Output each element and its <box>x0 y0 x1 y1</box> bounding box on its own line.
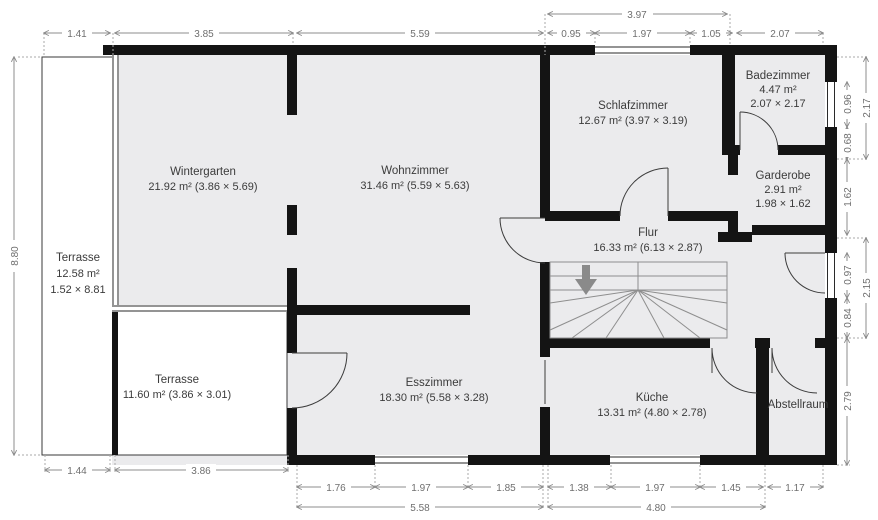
svg-text:16.33 m² (6.13 × 2.87): 16.33 m² (6.13 × 2.87) <box>593 242 702 254</box>
svg-text:1.97: 1.97 <box>645 483 665 494</box>
svg-text:1.62: 1.62 <box>843 187 854 207</box>
glazing-wintergarten-west <box>112 55 119 311</box>
svg-text:13.31 m² (4.80 × 2.78): 13.31 m² (4.80 × 2.78) <box>597 407 706 419</box>
dim-right-2: 2.17 <box>860 57 873 159</box>
svg-text:Terrasse: Terrasse <box>155 374 199 386</box>
floor-plan-canvas: Wintergarten 21.92 m² (3.86 × 5.69) Wohn… <box>0 0 878 520</box>
svg-text:5.58: 5.58 <box>410 503 430 514</box>
dim-bottom-8: 1.17 <box>768 481 823 494</box>
dim-right-7: 2.79 <box>841 338 854 465</box>
room-label-abstellraum: Abstellraum <box>768 399 829 411</box>
svg-text:1.17: 1.17 <box>785 483 805 494</box>
dim-top-6: 2.07 <box>737 27 823 40</box>
svg-text:1.76: 1.76 <box>326 483 346 494</box>
dim-bottom-total-1: 4.80 <box>548 501 765 514</box>
svg-text:5.59: 5.59 <box>410 29 430 40</box>
glazing-wintergarten-south <box>112 305 287 312</box>
dim-bottom-0: 1.44 <box>45 464 110 477</box>
dim-right-3: 1.62 <box>841 159 854 235</box>
svg-text:0.97: 0.97 <box>843 265 854 285</box>
dim-right-5: 0.84 <box>841 298 854 338</box>
terrace-south-area <box>115 311 287 455</box>
svg-text:0.68: 0.68 <box>843 133 854 153</box>
svg-text:31.46 m² (5.59 × 5.63): 31.46 m² (5.59 × 5.63) <box>360 180 469 192</box>
svg-text:Flur: Flur <box>638 227 658 239</box>
window-kueche-bottom <box>610 455 700 465</box>
svg-text:21.92 m² (3.86 × 5.69): 21.92 m² (3.86 × 5.69) <box>148 181 257 193</box>
svg-text:1.41: 1.41 <box>67 29 87 40</box>
floor-plan-page: Wintergarten 21.92 m² (3.86 × 5.69) Wohn… <box>0 0 878 520</box>
svg-text:3.86: 3.86 <box>191 466 211 477</box>
svg-text:Esszimmer: Esszimmer <box>406 377 463 389</box>
dim-bottom-1: 3.86 <box>115 464 288 477</box>
room-label-terrasse-west: Terrasse 12.58 m² 1.52 × 8.81 <box>50 252 105 296</box>
dim-bottom-total-0: 5.58 <box>297 501 543 514</box>
svg-text:Terrasse: Terrasse <box>56 252 100 264</box>
window-esszimmer-bottom <box>375 455 468 465</box>
svg-text:1.97: 1.97 <box>632 29 652 40</box>
svg-text:1.38: 1.38 <box>569 483 589 494</box>
svg-text:Schlafzimmer: Schlafzimmer <box>598 100 668 112</box>
svg-text:18.30 m² (5.58 × 3.28): 18.30 m² (5.58 × 3.28) <box>379 392 488 404</box>
svg-text:1.45: 1.45 <box>721 483 741 494</box>
dim-top-2: 5.59 <box>297 27 543 40</box>
svg-text:2.17: 2.17 <box>862 98 873 118</box>
dim-bottom-7: 1.45 <box>700 481 763 494</box>
svg-text:4.47 m²: 4.47 m² <box>759 84 797 96</box>
svg-text:1.52 × 8.81: 1.52 × 8.81 <box>50 284 105 296</box>
dim-bottom-2: 1.76 <box>297 481 375 494</box>
svg-text:2.07: 2.07 <box>770 29 790 40</box>
svg-text:12.58 m²: 12.58 m² <box>56 268 100 280</box>
svg-text:3.97: 3.97 <box>627 10 647 21</box>
svg-text:0.95: 0.95 <box>561 29 581 40</box>
svg-text:8.80: 8.80 <box>10 246 21 266</box>
svg-text:3.85: 3.85 <box>194 29 214 40</box>
svg-text:11.60 m² (3.86 × 3.01): 11.60 m² (3.86 × 3.01) <box>123 389 231 401</box>
dim-bottom-4: 1.85 <box>468 481 543 494</box>
svg-text:Badezimmer: Badezimmer <box>746 70 811 82</box>
svg-text:1.44: 1.44 <box>67 466 87 477</box>
svg-text:1.85: 1.85 <box>496 483 516 494</box>
dim-right-4: 0.97 <box>841 253 854 298</box>
dim-right-0: 0.96 <box>841 82 854 127</box>
svg-text:2.79: 2.79 <box>843 391 854 411</box>
svg-text:Wintergarten: Wintergarten <box>170 166 236 178</box>
dim-top-total: 3.97 <box>548 8 727 21</box>
dim-right-1: 0.68 <box>841 127 854 159</box>
svg-text:4.80: 4.80 <box>646 503 666 514</box>
svg-text:1.05: 1.05 <box>701 29 721 40</box>
svg-text:Küche: Küche <box>636 392 669 404</box>
svg-text:Abstellraum: Abstellraum <box>768 399 829 411</box>
window-schlafzimmer-top <box>595 45 690 55</box>
svg-text:1.97: 1.97 <box>411 483 431 494</box>
entry-opening-flur-right <box>825 253 837 298</box>
window-badezimmer-right <box>825 82 837 127</box>
svg-text:Garderobe: Garderobe <box>756 170 811 182</box>
dim-top-0: 1.41 <box>44 27 110 40</box>
dim-left-total: 8.80 <box>8 57 21 455</box>
dim-top-3: 0.95 <box>548 27 595 40</box>
dim-bottom-5: 1.38 <box>548 481 611 494</box>
dim-top-1: 3.85 <box>115 27 293 40</box>
dim-top-4: 1.97 <box>595 27 690 40</box>
dim-bottom-6: 1.97 <box>611 481 700 494</box>
svg-text:1.98 × 1.62: 1.98 × 1.62 <box>755 198 810 210</box>
svg-text:0.84: 0.84 <box>843 308 854 328</box>
dim-bottom-3: 1.97 <box>375 481 468 494</box>
dim-top-5: 1.05 <box>690 27 732 40</box>
dim-right-6: 2.15 <box>860 238 873 338</box>
svg-text:2.15: 2.15 <box>862 278 873 298</box>
svg-text:2.91 m²: 2.91 m² <box>764 184 802 196</box>
svg-text:2.07 × 2.17: 2.07 × 2.17 <box>750 98 805 110</box>
svg-text:Wohnzimmer: Wohnzimmer <box>381 165 449 177</box>
svg-text:0.96: 0.96 <box>843 94 854 114</box>
svg-text:12.67 m² (3.97 × 3.19): 12.67 m² (3.97 × 3.19) <box>578 115 687 127</box>
